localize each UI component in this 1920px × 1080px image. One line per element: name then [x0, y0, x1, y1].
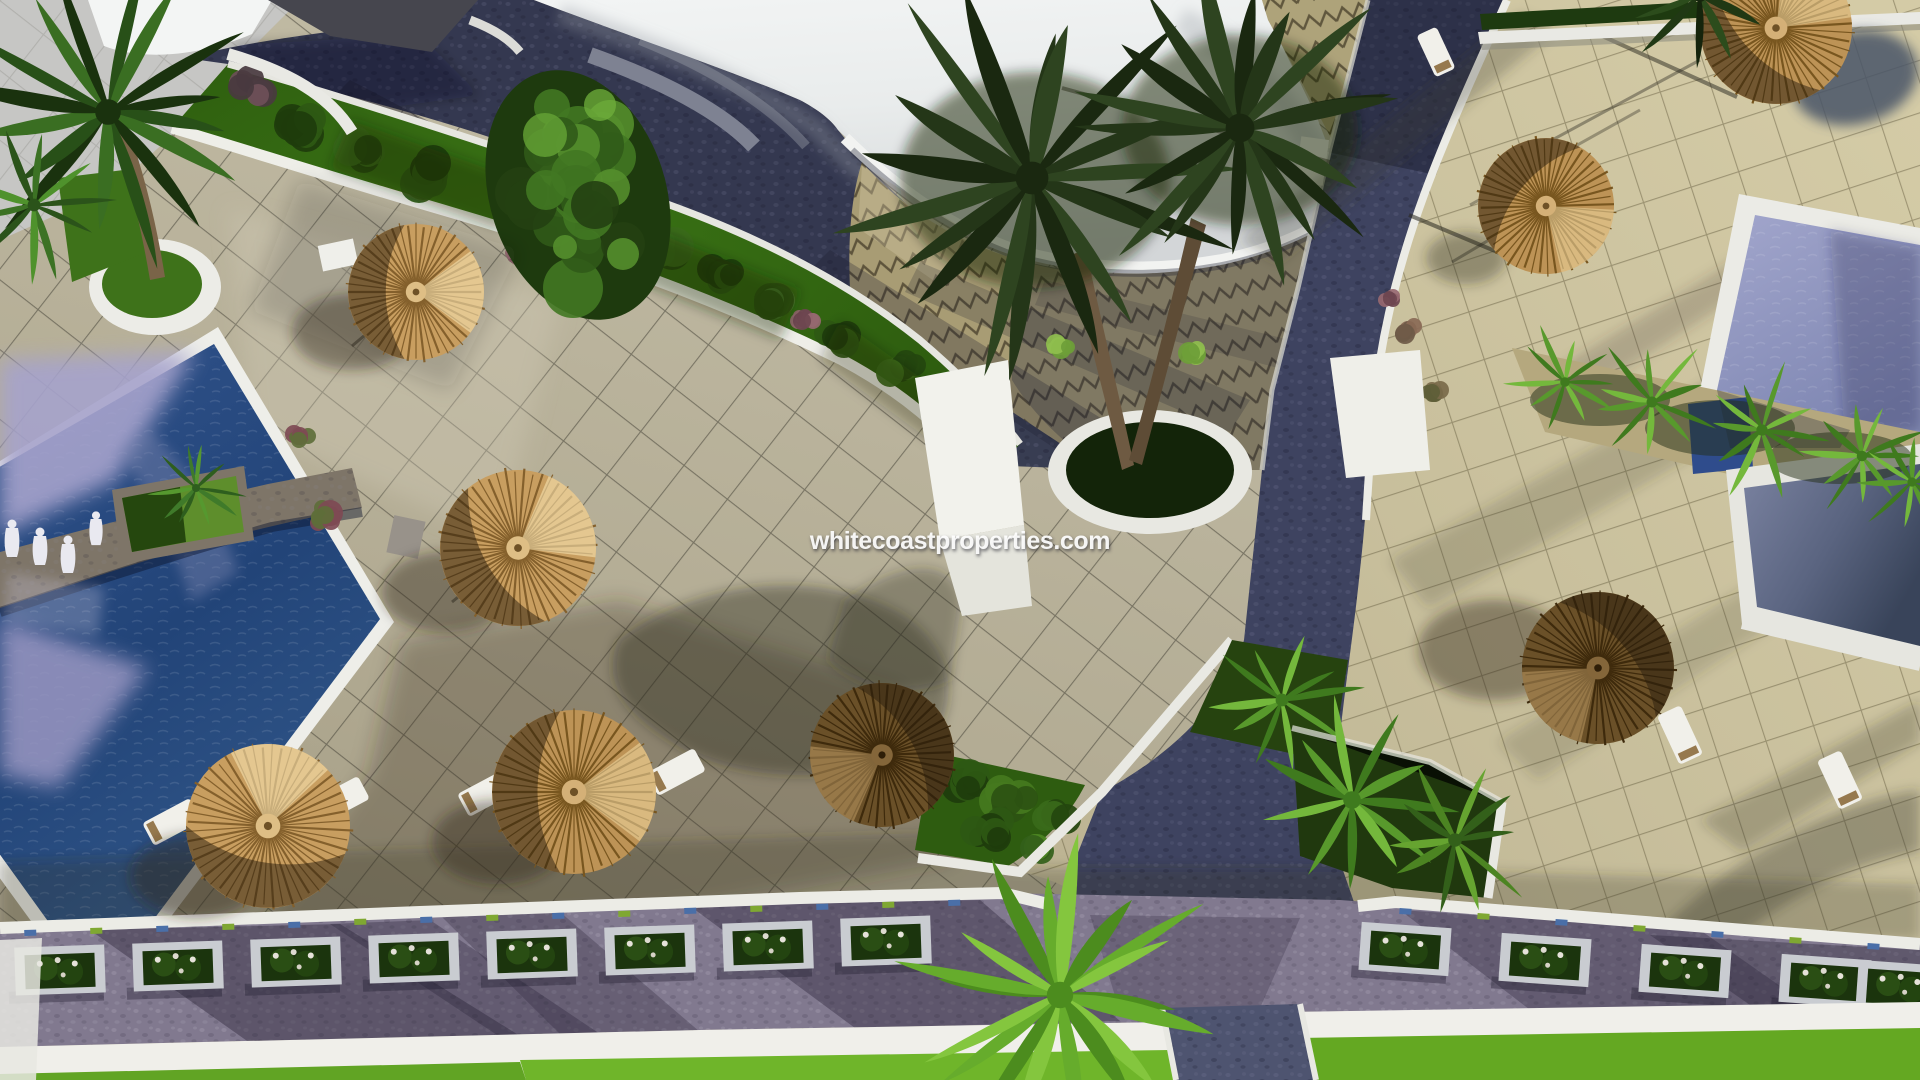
svg-text:whitecoastproperties.com: whitecoastproperties.com [809, 527, 1110, 555]
